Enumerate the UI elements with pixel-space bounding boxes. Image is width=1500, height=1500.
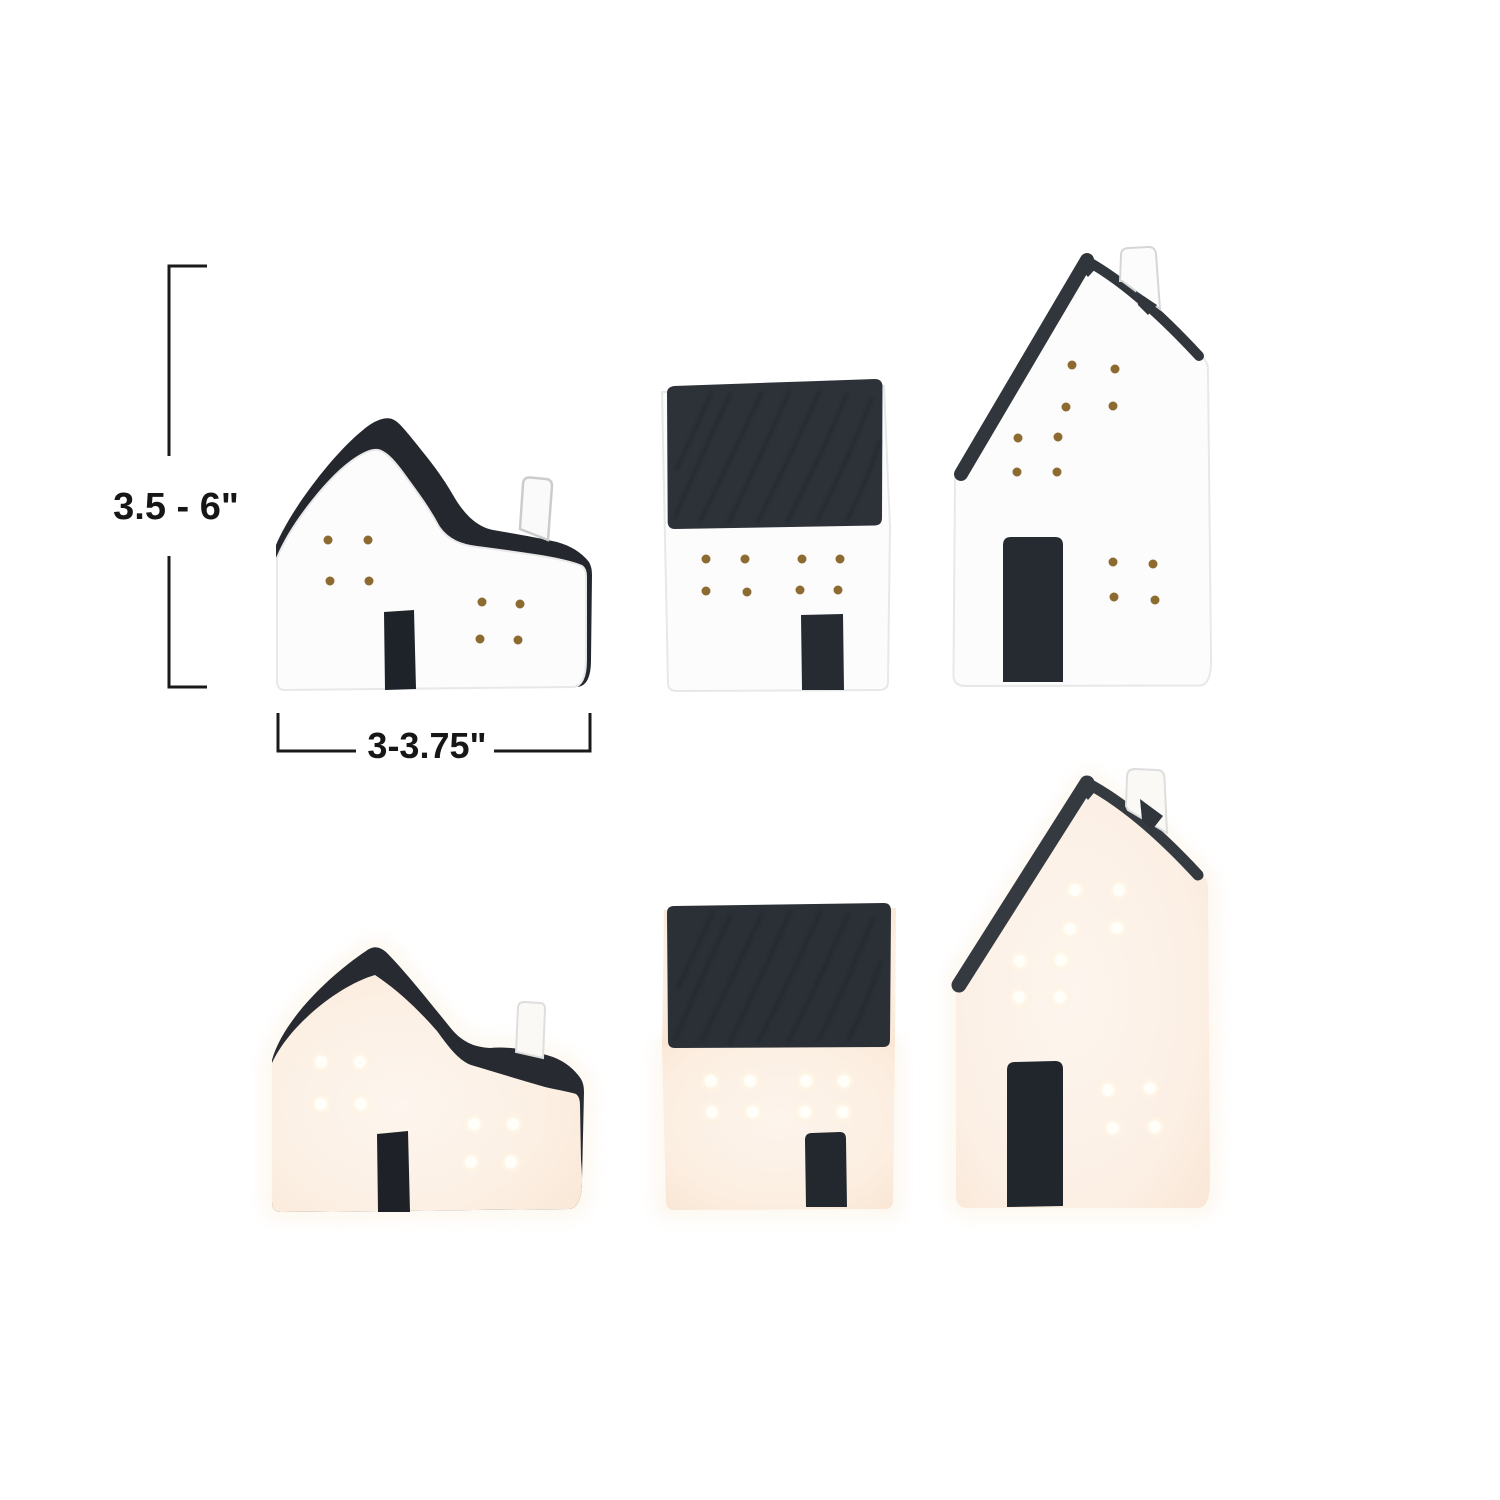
svg-text:3.5 - 6": 3.5 - 6" [113,486,239,528]
svg-text:3-3.75": 3-3.75" [367,725,486,766]
